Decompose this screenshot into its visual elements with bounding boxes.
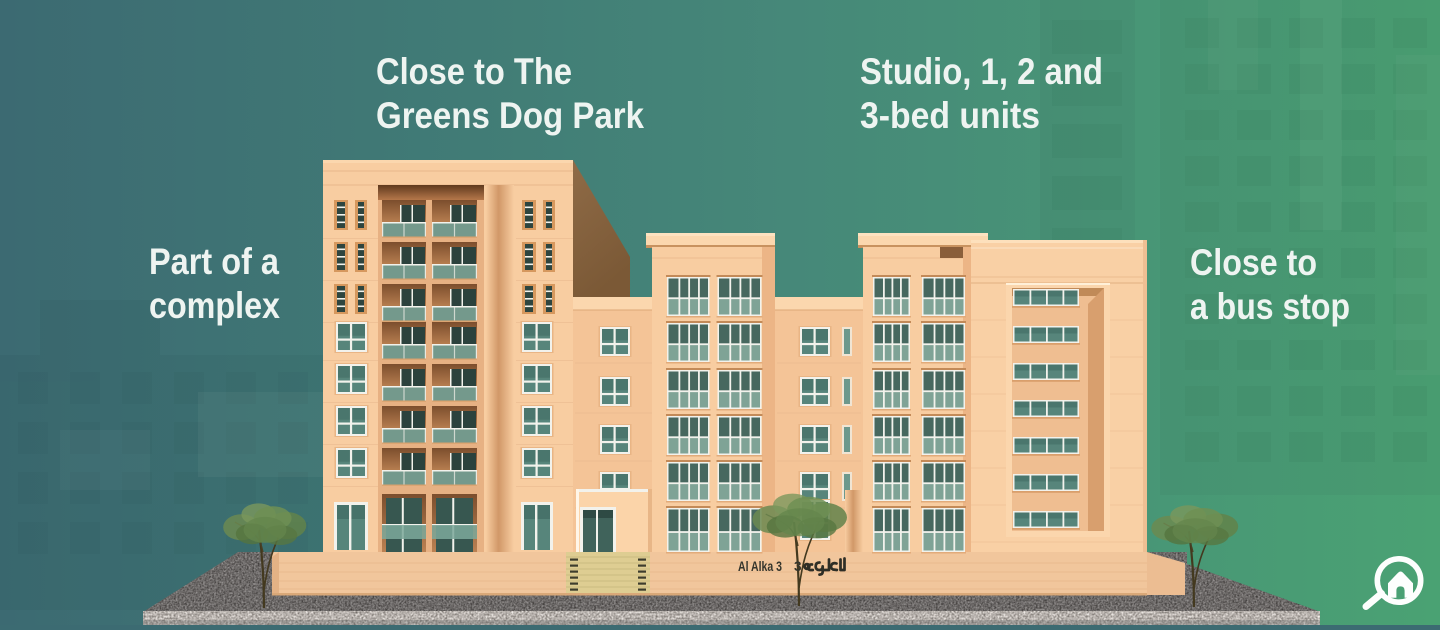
svg-text:Al Alka 3: Al Alka 3 (738, 559, 782, 574)
svg-text:Greens Dog Park: Greens Dog Park (376, 95, 644, 136)
svg-text:Part of a: Part of a (149, 241, 279, 282)
svg-text:3: 3 (794, 559, 802, 574)
svg-text:complex: complex (149, 285, 280, 326)
svg-text:Close to The: Close to The (376, 51, 572, 92)
svg-text:Close to: Close to (1190, 242, 1317, 283)
svg-text:3-bed units: 3-bed units (860, 95, 1040, 136)
svg-text:a bus stop: a bus stop (1190, 286, 1350, 327)
svg-text:Studio, 1, 2 and: Studio, 1, 2 and (860, 51, 1103, 92)
